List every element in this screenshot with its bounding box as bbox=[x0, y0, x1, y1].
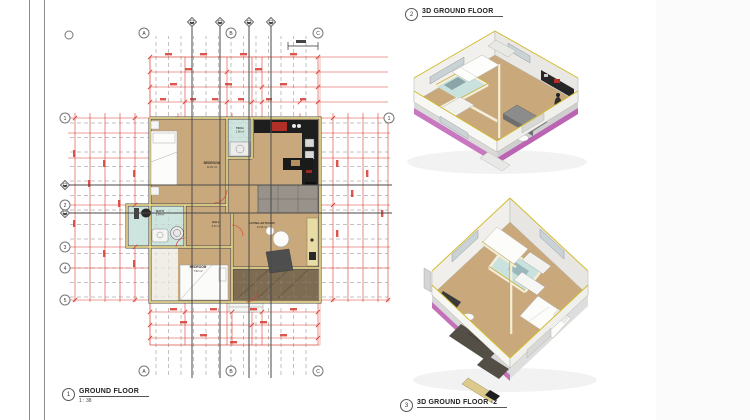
view-title-3d-ground-floor-2: 3 3D GROUND FLOOR -2 bbox=[400, 399, 507, 412]
chair bbox=[266, 227, 274, 235]
wall-stub bbox=[424, 268, 431, 292]
view-title-text: GROUND FLOOR bbox=[79, 388, 149, 397]
grid-label-1-left: 1 bbox=[64, 116, 67, 122]
floor-plan-2d: A B C A B C 1 2 3 4 5 1 BEDROOM 12.01 m²… bbox=[60, 18, 394, 379]
room-area-hall: 2.01 m² bbox=[212, 224, 221, 228]
grid-label-5-left: 5 bbox=[64, 298, 67, 304]
sofa bbox=[258, 185, 318, 213]
room-area-bath: 3.94 m² bbox=[156, 214, 165, 217]
room-area-bedroom2: 7.52 m² bbox=[193, 269, 202, 273]
grid-label-4-left: 4 bbox=[64, 266, 67, 272]
view-number-badge: 2 bbox=[405, 8, 418, 21]
grid-label-c-top: C bbox=[316, 31, 320, 37]
room-area-tech: 1.98 m² bbox=[236, 131, 245, 134]
room-label-tech: TECH. bbox=[236, 126, 244, 130]
bed-bedroom2 bbox=[180, 265, 228, 300]
grid-label-c-bottom: C bbox=[316, 369, 320, 375]
room-label-bedroom2: BEDROOM bbox=[190, 265, 207, 269]
room-label-hall: HALL bbox=[212, 220, 220, 224]
round-table bbox=[273, 231, 289, 247]
model-3d-ground-floor-2 bbox=[413, 198, 597, 402]
room-area-living-kitchen: 21.35 m² bbox=[257, 225, 267, 229]
view-number-badge: 1 bbox=[62, 388, 75, 401]
room-label-bedroom1: BEDROOM bbox=[204, 161, 221, 165]
tall-cabinet bbox=[307, 218, 318, 266]
room-label-bath: BATH bbox=[156, 209, 164, 213]
view-title-ground-floor: 1 GROUND FLOOR 1 : 38 bbox=[62, 388, 149, 404]
drawing-sheet: A B C A B C 1 2 3 4 5 1 BEDROOM 12.01 m²… bbox=[0, 0, 750, 420]
view-scale-text: 1 : 38 bbox=[79, 398, 149, 404]
model-3d-ground-floor bbox=[407, 31, 587, 174]
armchair bbox=[266, 249, 293, 273]
tv-unit bbox=[283, 158, 313, 170]
view-title-text: 3D GROUND FLOOR bbox=[422, 8, 503, 17]
grid-label-1-right: 1 bbox=[388, 116, 391, 122]
grid-label-2-left: 2 bbox=[64, 203, 67, 209]
room-label-living-kitchen: LIVING+KITCHEN bbox=[249, 221, 274, 225]
view-title-3d-ground-floor: 2 3D GROUND FLOOR bbox=[405, 8, 503, 21]
tech-fixtures bbox=[230, 142, 250, 156]
room-area-bedroom1: 12.01 m² bbox=[207, 165, 218, 169]
bed-bedroom1 bbox=[151, 121, 177, 195]
view-number-badge: 3 bbox=[400, 399, 413, 412]
view-title-text: 3D GROUND FLOOR -2 bbox=[417, 399, 507, 408]
grid-label-3-left: 3 bbox=[64, 245, 67, 251]
